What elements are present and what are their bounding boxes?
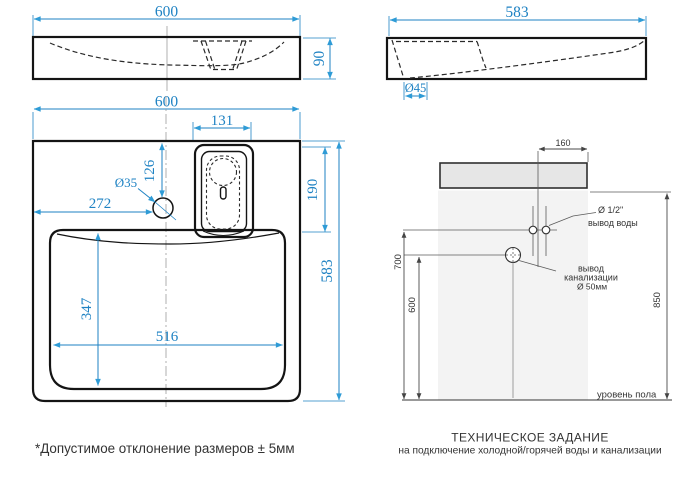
plan-box-depth-dim: 190 [305,179,321,202]
title-block: ТЕХНИЧЕСКОЕ ЗАДАНИЕ на подключение холод… [398,431,661,457]
mount-height-dim: 850 [652,292,663,308]
plan-depth-dim: 583 [319,259,336,283]
front-outline [33,37,300,79]
plan-view: 600 131 126 Ø35 272 [33,94,345,408]
front-width-dim: 600 [155,4,179,21]
sink-front [440,163,587,188]
water-height-dim: 700 [393,254,404,270]
side-outline [387,38,646,79]
plan-box-width-dim: 131 [211,113,234,129]
floor-level-label: уровень пола [597,390,657,401]
install-offset-dim: 160 [555,138,570,148]
title: ТЕХНИЧЕСКОЕ ЗАДАНИЕ [451,431,609,445]
plan-bowl-depth-dim: 347 [79,297,95,320]
plan-bowl-width-dim: 516 [156,329,179,345]
side-drain-dia-dim: Ø45 [405,81,427,95]
sewage-dia-label: Ø 50мм [577,282,607,292]
side-width-dim: 583 [505,4,529,21]
drain-height-dim: 600 [407,297,418,313]
front-height-dim: 90 [311,51,328,67]
plan-drain-box [195,145,253,237]
water-dia-label: Ø 1/2" [598,205,623,215]
plan-faucet-offset-x-dim: 272 [89,196,112,212]
water-outlet-right [542,226,550,234]
water-outlet-label: вывод воды [588,218,638,228]
plan-faucet-offset-y-dim: 126 [142,159,158,182]
water-outlet-left [529,226,537,234]
front-view: 600 90 [33,4,336,92]
overflow-slot [221,187,227,199]
plan-width-dim: 600 [155,94,179,111]
plan-outline [33,141,300,401]
subtitle: на подключение холодной/горячей воды и к… [398,446,661,457]
side-bowl-contour [392,40,645,78]
tolerance-footnote: *Допустимое отклонение размеров ± 5мм [35,441,295,456]
side-view: 583 Ø45 [387,4,646,100]
plan-bowl-rim [57,233,279,244]
installation-diagram: 160 Ø 1/2" вывод воды вывод канализации … [393,138,672,401]
plan-faucet-dia-dim: Ø35 [115,175,137,190]
technical-drawing-sheet: 600 90 583 Ø45 [0,0,700,482]
